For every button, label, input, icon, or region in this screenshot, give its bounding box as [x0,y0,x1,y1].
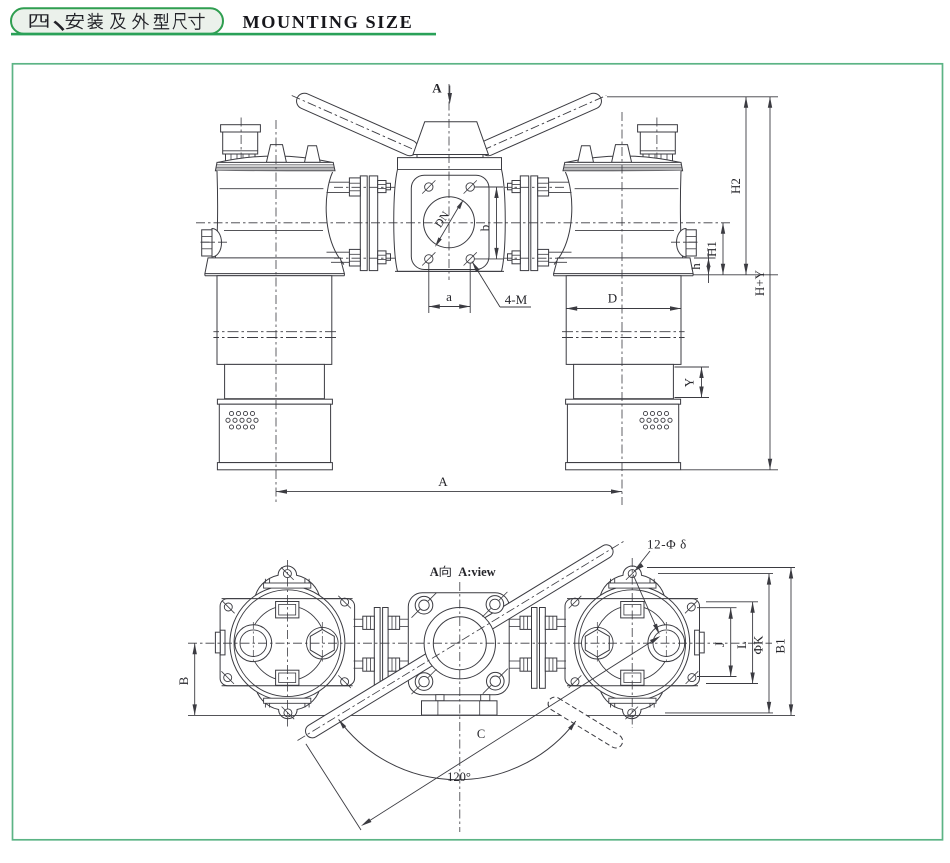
svg-text:12-Φ δ: 12-Φ δ [647,537,687,552]
svg-text:C: C [477,727,485,741]
svg-text:H+Y: H+Y [752,269,767,296]
svg-text:H2: H2 [728,178,743,194]
svg-text:a: a [446,289,452,304]
svg-text:B: B [176,676,191,685]
svg-text:MOUNTING SIZE: MOUNTING SIZE [243,12,414,32]
svg-text:ΦK: ΦK [751,635,766,655]
svg-text:A: A [438,474,448,489]
svg-text:A:view: A:view [458,565,496,579]
svg-text:L: L [734,641,749,649]
svg-text:H1: H1 [704,241,719,257]
svg-text:J: J [712,642,727,647]
svg-text:A: A [430,565,439,579]
svg-text:D: D [608,291,617,306]
svg-text:4-M: 4-M [505,292,528,307]
svg-text:120°: 120° [447,770,471,784]
svg-text:Y: Y [682,377,697,387]
svg-text:b: b [477,225,492,232]
svg-text:h: h [688,263,703,270]
svg-text:A: A [432,81,442,96]
svg-text:B1: B1 [773,638,788,653]
